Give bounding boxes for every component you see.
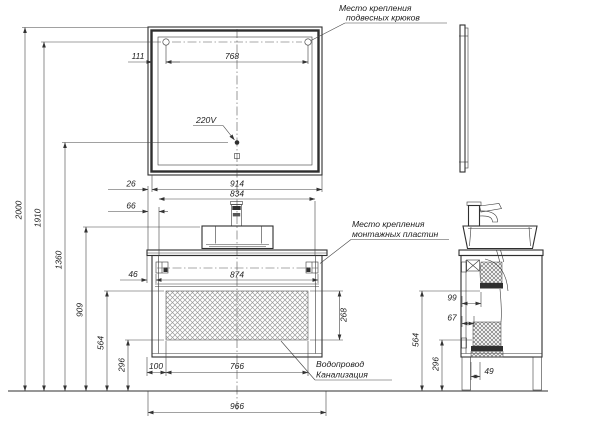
dim-drain-x: 99 bbox=[447, 293, 457, 303]
right-mounting-plate bbox=[306, 262, 318, 273]
dim-outlet-height: 1360 bbox=[54, 250, 64, 269]
mirror-front-view bbox=[148, 27, 322, 175]
back-leg bbox=[533, 357, 542, 390]
dim-inner-width: 834 bbox=[230, 189, 244, 199]
dim-total-width: 966 bbox=[230, 401, 244, 411]
mid-width-dimensions: 26 914 834 66 bbox=[108, 175, 322, 255]
plumbing-zone-hatch bbox=[166, 291, 308, 340]
dim-inlet-height: 296 bbox=[117, 358, 127, 373]
dim-drain-height: 564 bbox=[96, 336, 106, 350]
outlet-label: 220V bbox=[195, 115, 217, 125]
dim-hatch-width: 766 bbox=[230, 361, 244, 371]
dim-mirror-width: 914 bbox=[230, 179, 244, 189]
plate-dimensions: 46 874 bbox=[120, 256, 318, 283]
faucet-side-view bbox=[467, 202, 502, 226]
front-leg bbox=[462, 357, 471, 390]
mirror-side-view bbox=[459, 25, 468, 172]
bottom-width-dimensions: 100 766 966 bbox=[147, 341, 326, 416]
drain-pipe-lower bbox=[500, 289, 501, 322]
plate-section-icon bbox=[467, 260, 480, 271]
power-outlet-point bbox=[235, 140, 240, 145]
dim-plate-spacing: 874 bbox=[230, 270, 244, 280]
left-hook-icon bbox=[163, 39, 169, 45]
annotation-plates: Место крепления монтажных пластин bbox=[320, 219, 449, 264]
annotation-plumbing: Водопровод Канализация bbox=[281, 341, 392, 380]
drawing-canvas: 2000 1910 1360 909 564 296 111 768 26 91… bbox=[0, 0, 600, 424]
water-supply-hatch bbox=[473, 322, 501, 346]
basin-side-view bbox=[463, 226, 537, 249]
annotation-outlet: 220V bbox=[193, 115, 235, 140]
dim-hook-spacing: 768 bbox=[225, 51, 239, 61]
drain-siphon-hatch bbox=[480, 262, 502, 283]
dim-hatch-offset: 100 bbox=[149, 361, 163, 371]
supply-bracket bbox=[471, 346, 503, 351]
faucet-front-view bbox=[231, 202, 243, 227]
dim-side-inlet-height: 296 bbox=[431, 357, 441, 372]
plumbing-note-line2: Канализация bbox=[316, 370, 368, 380]
dim-mirror-offset: 26 bbox=[125, 179, 136, 189]
drain-outlet bbox=[480, 283, 503, 289]
plates-note-line2: монтажных пластин bbox=[352, 229, 438, 239]
annotation-hooks: Место крепления подвесных крюков bbox=[311, 3, 447, 41]
dim-inner-offset: 66 bbox=[126, 201, 136, 211]
basin-front-view bbox=[202, 226, 273, 249]
left-mounting-plate bbox=[156, 262, 168, 273]
dim-basin-height: 909 bbox=[75, 303, 85, 317]
dim-hatch-height: 268 bbox=[339, 308, 349, 323]
right-hook-icon bbox=[305, 39, 311, 45]
dim-hooks-height: 1910 bbox=[33, 208, 43, 227]
dim-inlet-x: 67 bbox=[447, 313, 457, 323]
plumbing-note-line1: Водопровод bbox=[316, 359, 364, 369]
dim-plate-offset: 46 bbox=[128, 269, 138, 279]
dim-foot-x: 49 bbox=[484, 366, 494, 376]
hooks-note-line1: Место крепления bbox=[339, 3, 412, 13]
plates-note-line1: Место крепления bbox=[352, 219, 425, 229]
dim-side-drain-height: 564 bbox=[411, 333, 421, 347]
technical-drawing-vanity-mirror: 2000 1910 1360 909 564 296 111 768 26 91… bbox=[0, 0, 600, 424]
cabinet-side-view bbox=[459, 202, 543, 390]
dim-total-height: 2000 bbox=[14, 200, 24, 220]
dim-hook-offset: 111 bbox=[132, 51, 145, 61]
hooks-note-line2: подвесных крюков bbox=[346, 13, 420, 23]
mirror-width-dimensions: 111 768 bbox=[128, 51, 308, 62]
